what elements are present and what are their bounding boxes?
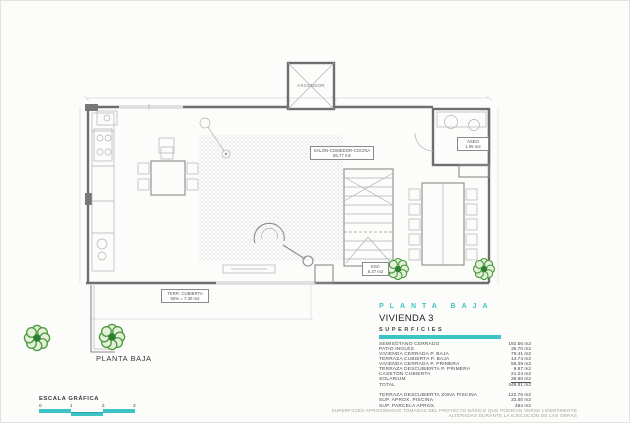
legend-accent-bar <box>379 335 501 339</box>
sink-icon <box>97 239 107 249</box>
cooktop-burner-icon <box>97 149 103 155</box>
plan-caption: PLANTA BAJA <box>96 354 152 363</box>
cooktop-burner-icon <box>105 149 111 155</box>
surface-legend: PLANTA BAJA VIVIENDA 3 SUPERFICIES SEMIS… <box>379 303 531 409</box>
surface-label: TOTAL <box>379 383 395 388</box>
kitchen-counter <box>92 111 117 271</box>
living-room-label: SALÓN-COMEDOR-COCINA 55,77 m2 <box>310 146 374 160</box>
scale-bar <box>39 409 135 416</box>
scale-bar-segment <box>71 413 103 417</box>
scale-bar-segment <box>39 409 71 413</box>
tree-icon <box>99 324 124 349</box>
dwelling-title: VIVIENDA 3 <box>379 313 531 324</box>
elevator-label: ASCENSOR <box>288 83 334 88</box>
legend-heading: PLANTA BAJA <box>379 303 531 310</box>
tree-icon <box>474 259 495 280</box>
stairs-label: ESC 6.37 m2 <box>362 262 389 276</box>
scale-bar-segment <box>103 409 135 413</box>
scale-tick: 0 <box>39 403 42 408</box>
cooktop-burner-icon <box>105 135 111 141</box>
scale-tick: 1 <box>70 403 73 408</box>
surface-value: 449.81 m2 <box>508 383 531 388</box>
legend-subheading: SUPERFICIES <box>379 327 531 333</box>
cooktop-burner-icon <box>97 135 103 141</box>
scale-tick: 2 <box>102 403 105 408</box>
tree-icon <box>24 325 49 350</box>
footer-disclaimer: SUPERFICIES APROXIMADAS TOMADAS DEL PROY… <box>307 408 577 418</box>
floor-plan-sheet: .w{stroke:#6e6e6e;stroke-width:2.4;fill:… <box>0 0 630 423</box>
graphic-scale: ESCALA GRÁFICA 0 1 2 3 <box>39 396 149 416</box>
dining-table <box>138 138 198 195</box>
staircase <box>344 169 393 266</box>
covered-terrace-label: TERR. CUBIERTA 50% = 7.30 m2 <box>161 289 209 303</box>
terrace-table <box>409 183 477 265</box>
scale-label: ESCALA GRÁFICA <box>39 396 149 402</box>
tree-icon <box>388 259 409 280</box>
scale-tick: 3 <box>133 403 136 408</box>
toilet-label: ASEO 1.95 m2 <box>457 137 489 151</box>
sink-icon <box>98 252 106 260</box>
